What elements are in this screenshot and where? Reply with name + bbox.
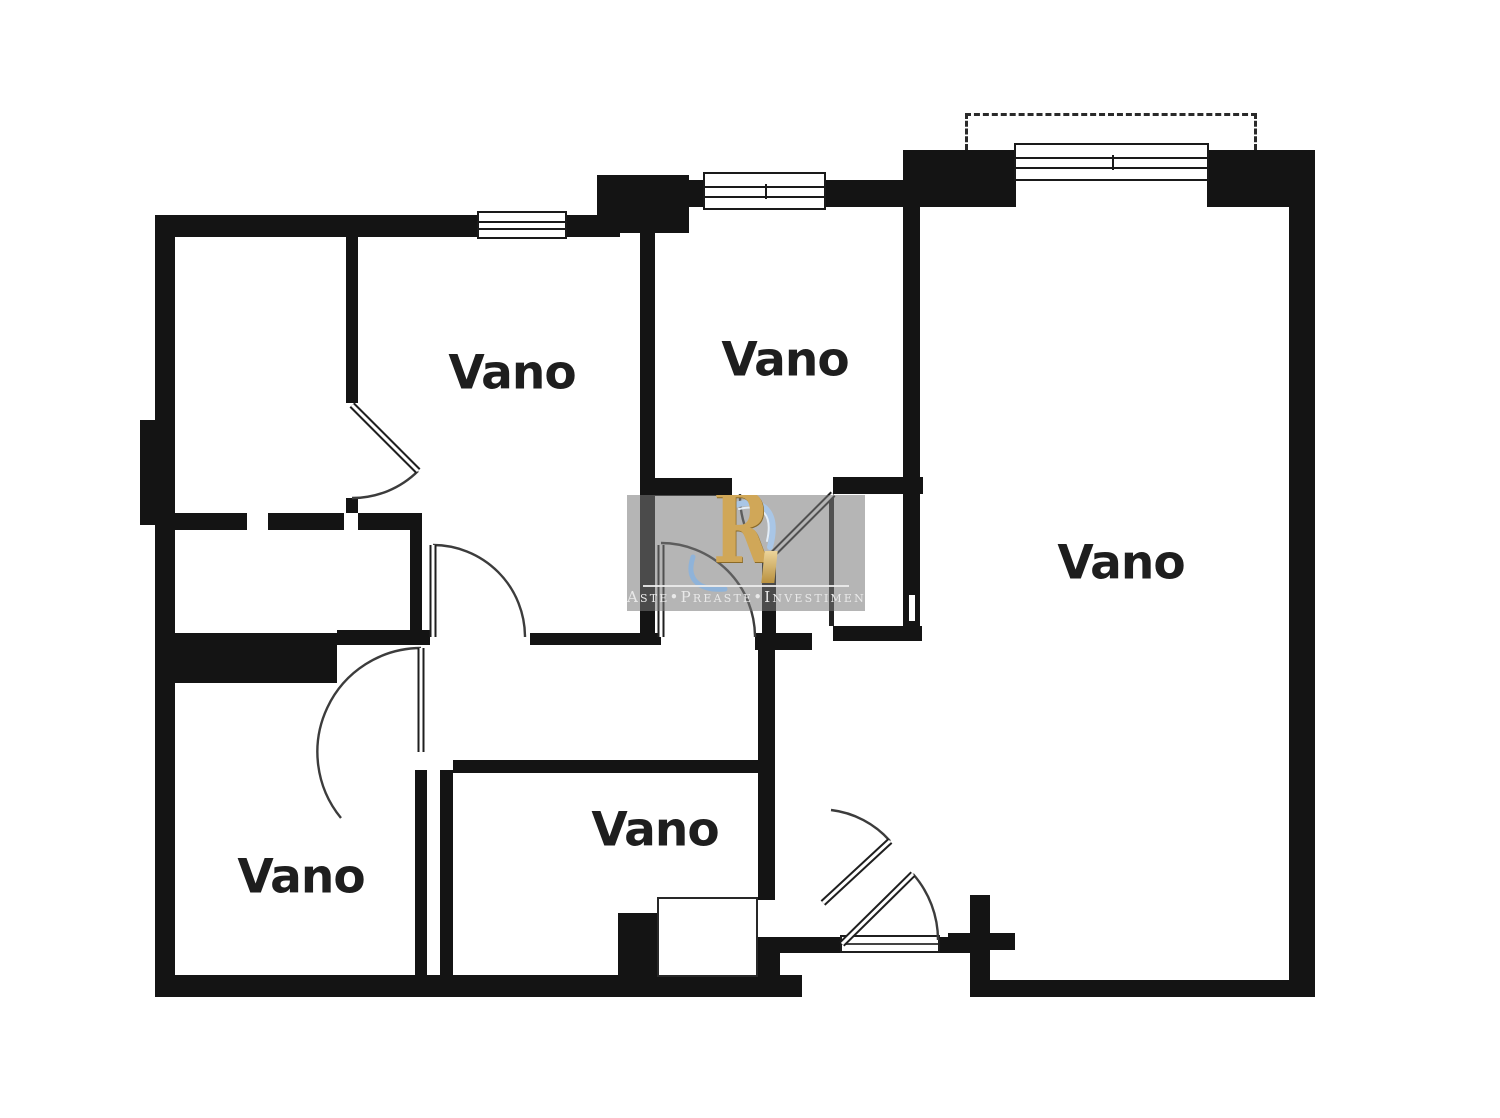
door-arc	[831, 810, 890, 841]
room-label-3: Vano	[1057, 536, 1184, 591]
room-label-4: Vano	[237, 850, 364, 905]
watermark-rule	[643, 585, 849, 587]
floor-plan-canvas: Vano Vano Vano Vano Vano R Aste•Preaste•…	[0, 0, 1500, 1118]
watermark-text: Aste•Preaste•Investimenti	[627, 588, 865, 606]
room-label-1: Vano	[448, 346, 575, 401]
watermark-panel: R Aste•Preaste•Investimenti	[627, 495, 865, 611]
door-arc	[317, 648, 421, 818]
door-leaf	[823, 841, 890, 903]
door-leaf	[842, 874, 913, 944]
door-arc	[433, 545, 525, 637]
watermark-logo: R	[713, 495, 770, 577]
door-arc	[913, 874, 938, 940]
room-label-2: Vano	[721, 333, 848, 388]
door-arc	[352, 471, 418, 498]
room-label-5: Vano	[591, 803, 718, 858]
door-leaf	[352, 405, 418, 471]
